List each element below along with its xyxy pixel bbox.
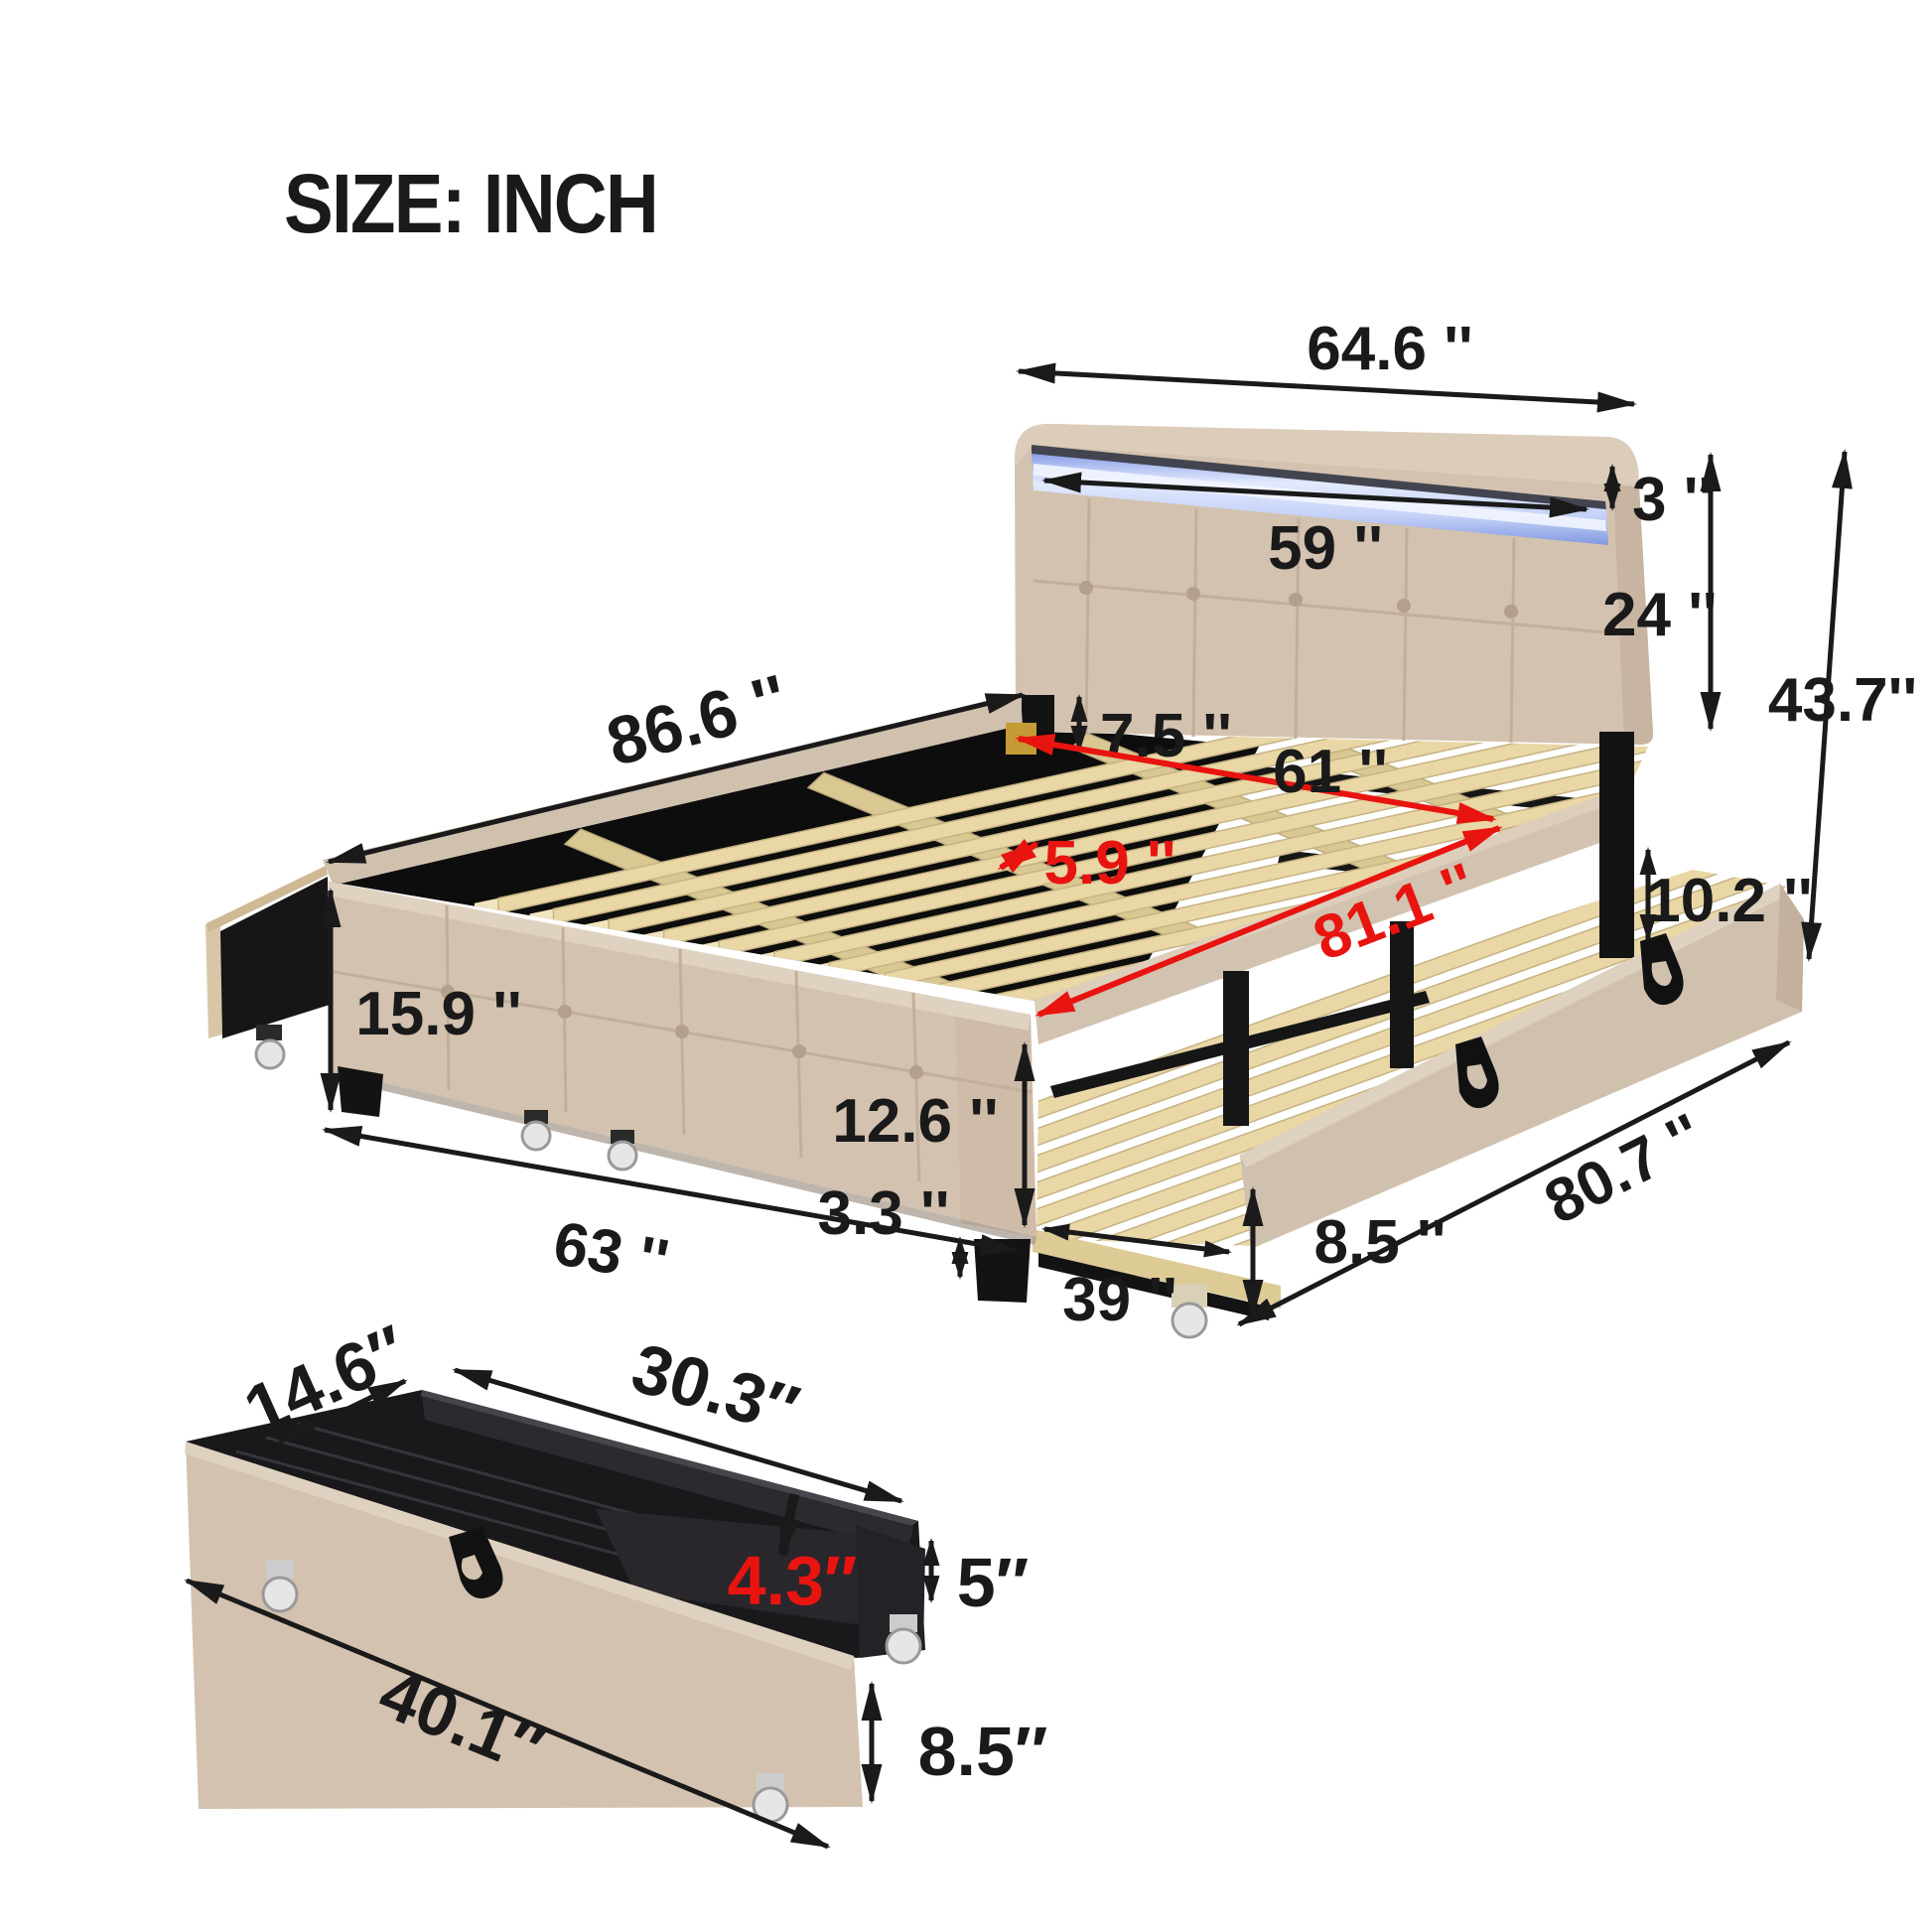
svg-text:59 '': 59 '': [1268, 514, 1383, 583]
svg-text:7.5 '': 7.5 '': [1100, 702, 1232, 770]
svg-text:24 '': 24 '': [1602, 581, 1718, 649]
svg-text:5.9 '': 5.9 '': [1044, 829, 1176, 897]
svg-text:64.6 '': 64.6 '': [1307, 315, 1472, 383]
svg-text:12.6 '': 12.6 '': [832, 1087, 998, 1156]
svg-text:61 '': 61 '': [1273, 738, 1388, 806]
svg-text:8.5″: 8.5″: [918, 1713, 1048, 1790]
svg-text:3 '': 3 '': [1632, 466, 1713, 534]
svg-text:39 '': 39 '': [1062, 1266, 1177, 1334]
svg-text:43.7'': 43.7'': [1768, 666, 1917, 735]
svg-text:3.3 '': 3.3 '': [818, 1179, 950, 1248]
svg-text:5″: 5″: [957, 1544, 1029, 1621]
svg-text:15.9 '': 15.9 '': [355, 980, 521, 1048]
svg-text:SIZE: INCH: SIZE: INCH: [284, 157, 657, 250]
svg-text:10.2 '': 10.2 '': [1646, 867, 1812, 935]
svg-text:8.5 '': 8.5 '': [1314, 1208, 1447, 1277]
svg-text:4.3″: 4.3″: [728, 1542, 858, 1619]
